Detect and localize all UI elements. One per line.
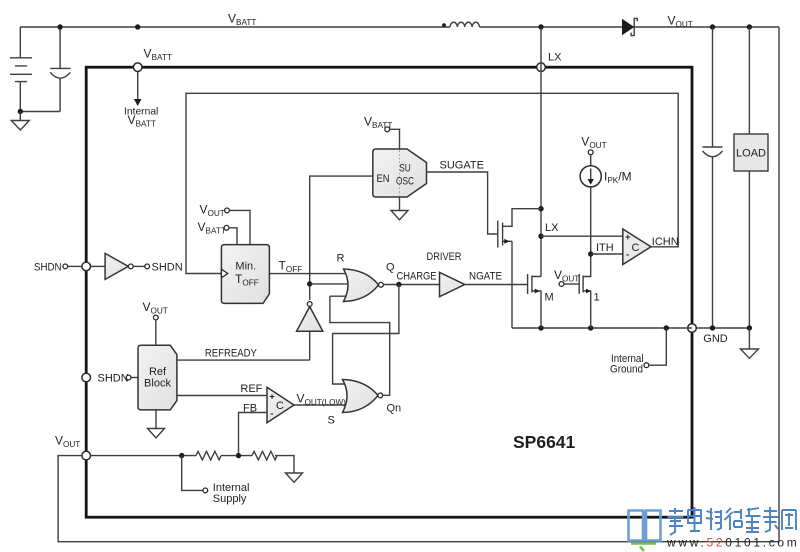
svg-text:SU: SU [399,163,411,175]
svg-text:SHDN: SHDN [152,261,183,273]
svg-text:LX: LX [545,222,559,234]
svg-text:IPK/M: IPK/M [604,170,632,186]
svg-text:SHDN: SHDN [98,372,129,384]
svg-text:EN: EN [377,173,390,185]
svg-text:ICHN: ICHN [652,236,679,248]
svg-text:VBATT: VBATT [228,12,256,28]
svg-text:OSC: OSC [396,176,414,188]
svg-text:VOUT: VOUT [200,203,225,219]
svg-text:VOUT(LOW): VOUT(LOW) [297,392,347,408]
svg-text:GND: GND [703,333,728,345]
svg-text:VOUT: VOUT [554,268,579,284]
svg-text:M: M [545,292,554,304]
svg-text:Ref: Ref [149,366,167,378]
svg-text:R: R [337,253,345,265]
svg-text:Q: Q [386,262,395,274]
svg-text:VOUT: VOUT [143,300,168,316]
svg-text:DRIVER: DRIVER [427,251,462,263]
svg-text:-: - [626,250,629,261]
svg-text:Supply: Supply [213,493,247,505]
svg-text:+: + [625,232,631,243]
svg-text:+: + [269,392,275,403]
svg-text:REF: REF [240,383,262,395]
svg-text:SP6641: SP6641 [513,432,576,452]
svg-text:NGATE: NGATE [469,270,502,282]
svg-text:TOFF: TOFF [279,259,303,275]
svg-text:S: S [328,415,335,427]
svg-text:VBATT: VBATT [198,220,226,236]
svg-text:VOUT: VOUT [55,434,80,450]
svg-text:SHDN: SHDN [34,261,62,273]
svg-text:1: 1 [594,292,600,304]
svg-text:Qn: Qn [387,403,402,415]
svg-text:CHARGE: CHARGE [397,270,437,282]
svg-text:LOAD: LOAD [736,148,766,160]
svg-text:C: C [632,242,640,254]
svg-text:Block: Block [144,378,171,390]
svg-text:-: - [270,409,273,420]
svg-text:Min.: Min. [235,260,256,272]
svg-text:LX: LX [548,52,562,64]
svg-text:VBATT: VBATT [144,47,172,63]
svg-text:REFREADY: REFREADY [205,347,258,359]
svg-text:FB: FB [243,402,257,414]
svg-text:SUGATE: SUGATE [440,160,484,172]
svg-text:VOUT: VOUT [581,134,606,150]
svg-text:ITH: ITH [596,242,614,254]
svg-text:VOUT: VOUT [668,14,693,30]
svg-text:C: C [276,400,284,412]
svg-text:Ground: Ground [610,364,643,376]
svg-text:www.520101.com: www.520101.com [666,536,798,550]
